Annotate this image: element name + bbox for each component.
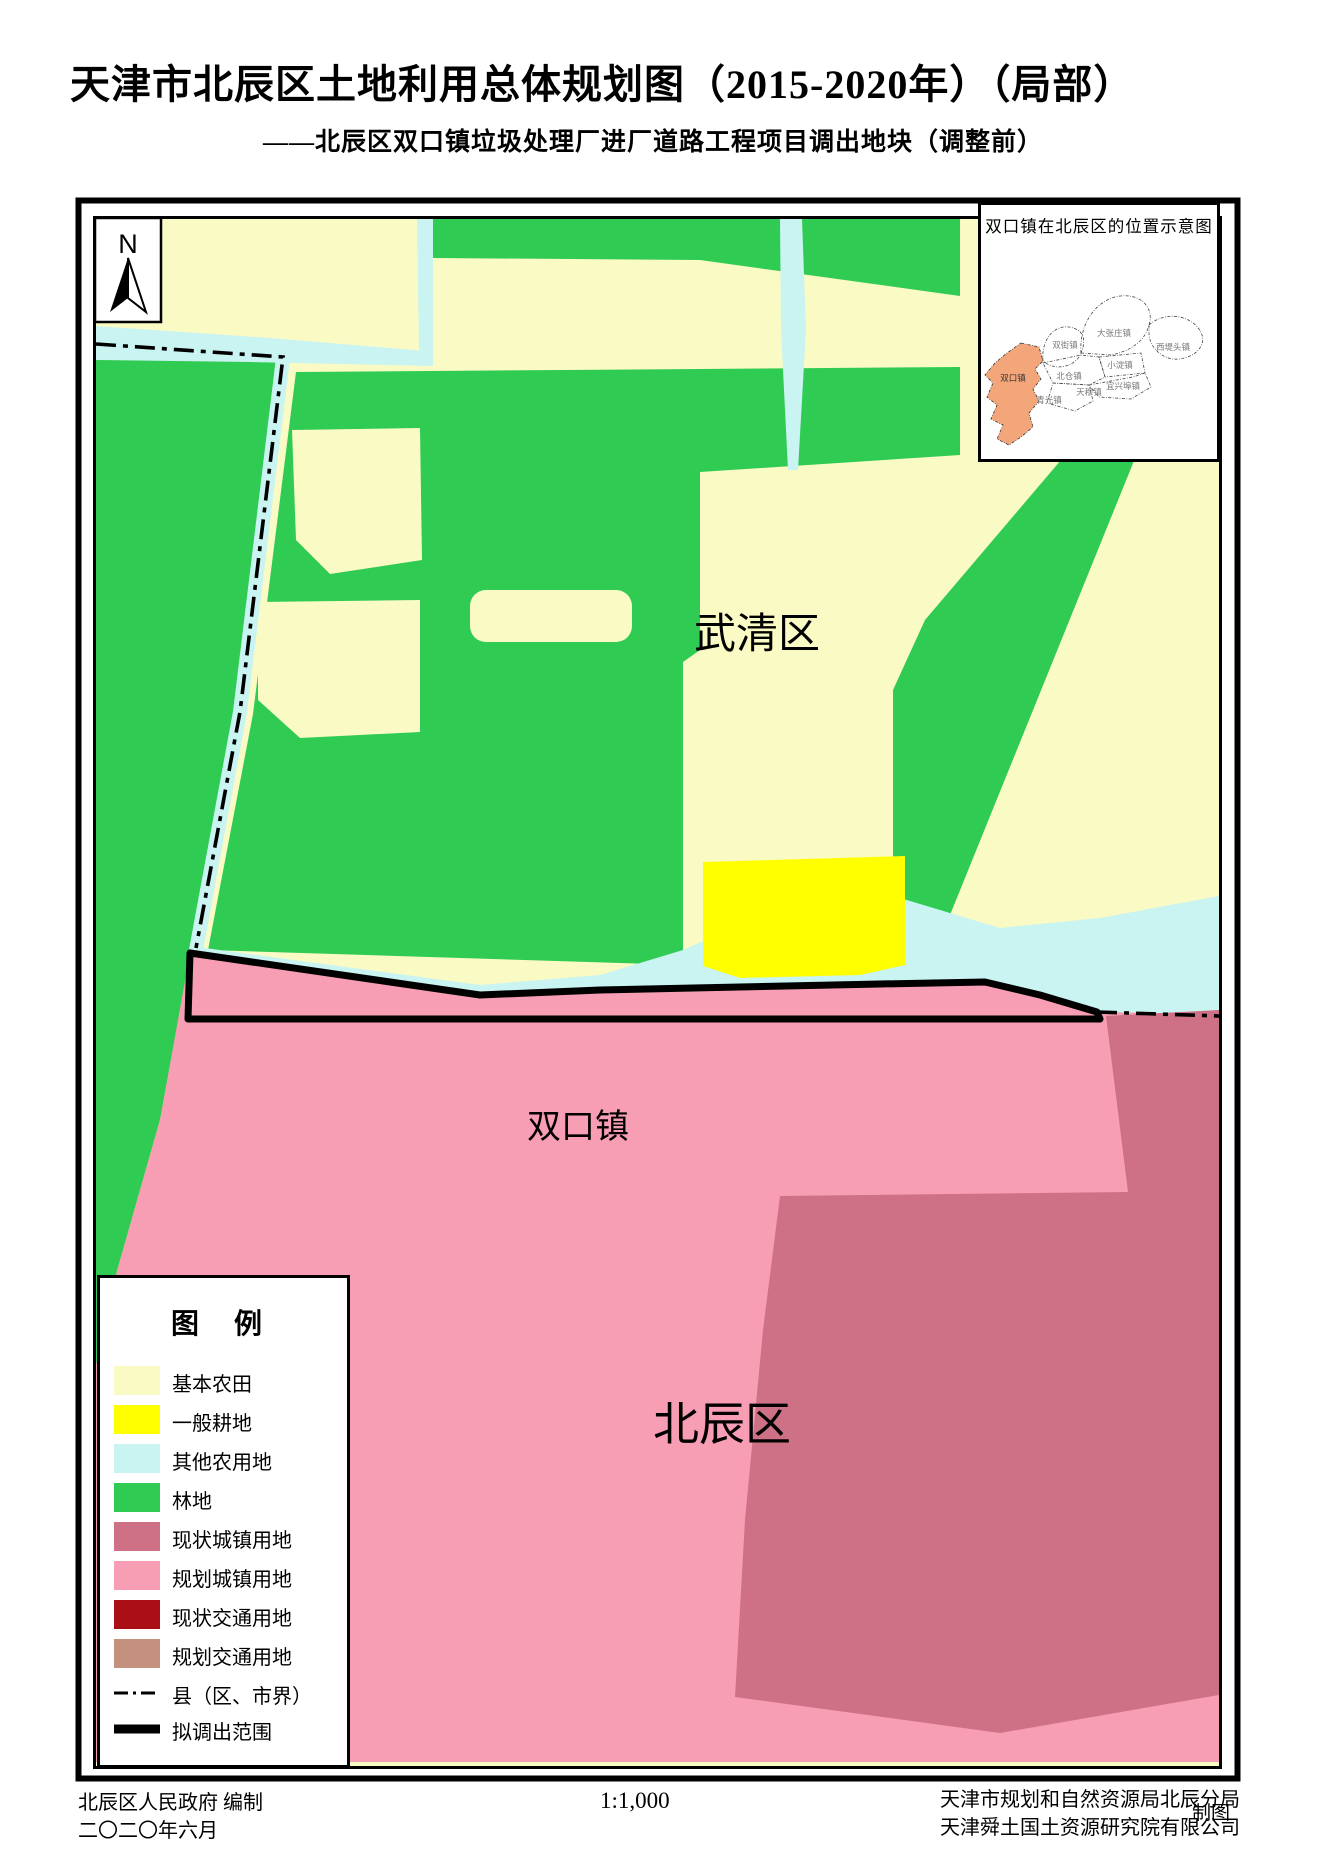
- inset-canvas: 双街镇 大张庄镇 西堤头镇 小淀镇 北仓镇 宜兴埠镇 天穆镇 青光镇 双口镇: [981, 235, 1217, 461]
- legend-label: 县（区、市界）: [172, 1680, 312, 1709]
- legend-swatch: [114, 1483, 160, 1512]
- footer-drafter: 制图: [1192, 1798, 1230, 1825]
- inset-town-label: 北仓镇: [1056, 371, 1082, 381]
- inset-title: 双口镇在北辰区的位置示意图: [981, 213, 1217, 237]
- legend-item: 拟调出范围: [114, 1714, 344, 1744]
- north-label: N: [118, 229, 138, 259]
- legend-label: 拟调出范围: [172, 1716, 272, 1745]
- inset-locator-map: 双口镇在北辰区的位置示意图 双街镇 大张庄镇 西堤头镇 小淀镇 北仓镇: [978, 202, 1220, 462]
- inset-town-label: 双街镇: [1052, 340, 1078, 350]
- legend-label: 现状城镇用地: [172, 1524, 292, 1553]
- inset-town-label: 小淀镇: [1107, 360, 1133, 370]
- label-shuangkou-town: 双口镇: [527, 1108, 629, 1146]
- farmland-patch: [258, 600, 420, 738]
- legend: 图 例 基本农田 一般耕地 其他农用地 林地 现状城镇用地 规划城镇用地 现状交…: [97, 1275, 350, 1768]
- planning-map-page: 天津市北辰区土地利用总体规划图（2015-2020年）（局部） ——北辰区双口镇…: [0, 0, 1320, 1865]
- legend-item: 现状城镇用地: [114, 1522, 344, 1552]
- label-beichen-district: 北辰区: [653, 1398, 791, 1450]
- footer-compiler: 北辰区人民政府 编制: [78, 1786, 263, 1815]
- inset-town-label: 青光镇: [1036, 395, 1062, 405]
- legend-item: 现状交通用地: [114, 1600, 344, 1630]
- inset-town-outlines: [1043, 296, 1203, 411]
- legend-swatch: [114, 1639, 160, 1668]
- legend-swatch: [114, 1600, 160, 1629]
- north-indicator: N: [95, 218, 161, 322]
- farmland-patch: [292, 428, 422, 574]
- legend-item: 基本农田: [114, 1366, 344, 1396]
- legend-item: 林地: [114, 1483, 344, 1513]
- inset-town-label-highlight: 双口镇: [1000, 373, 1026, 383]
- legend-swatch: [114, 1405, 160, 1434]
- legend-title: 图 例: [100, 1302, 347, 1342]
- water-channel-vertical-1: [417, 219, 433, 352]
- legend-label: 现状交通用地: [172, 1602, 292, 1631]
- legend-label: 林地: [172, 1485, 212, 1514]
- legend-label: 一般耕地: [172, 1407, 252, 1436]
- inset-town-label: 宜兴埠镇: [1106, 381, 1141, 391]
- legend-item: 其他农用地: [114, 1444, 344, 1474]
- legend-label: 基本农田: [172, 1368, 252, 1397]
- legend-item: 规划城镇用地: [114, 1561, 344, 1591]
- label-wuqing-district: 武清区: [694, 610, 820, 657]
- legend-label: 其他农用地: [172, 1446, 272, 1475]
- legend-swatch: [114, 1522, 160, 1551]
- footer-date: 二〇二〇年六月: [78, 1814, 218, 1843]
- inset-shuangkou-shape: [985, 343, 1043, 445]
- inset-town-label: 西堤头镇: [1156, 342, 1191, 352]
- map-scale: 1:1,000: [600, 1788, 670, 1814]
- legend-label: 规划城镇用地: [172, 1563, 292, 1592]
- legend-swatch: [114, 1444, 160, 1473]
- legend-item: 规划交通用地: [114, 1639, 344, 1669]
- legend-swatch: [114, 1561, 160, 1590]
- inset-town-label: 天穆镇: [1076, 387, 1102, 397]
- region-general-cropland: [703, 856, 905, 978]
- legend-item: 县（区、市界）: [114, 1678, 344, 1708]
- legend-item: 一般耕地: [114, 1405, 344, 1435]
- legend-swatch: [114, 1366, 160, 1395]
- legend-label: 规划交通用地: [172, 1641, 292, 1670]
- farmland-patch: [470, 590, 632, 642]
- inset-town-label: 大张庄镇: [1097, 328, 1132, 338]
